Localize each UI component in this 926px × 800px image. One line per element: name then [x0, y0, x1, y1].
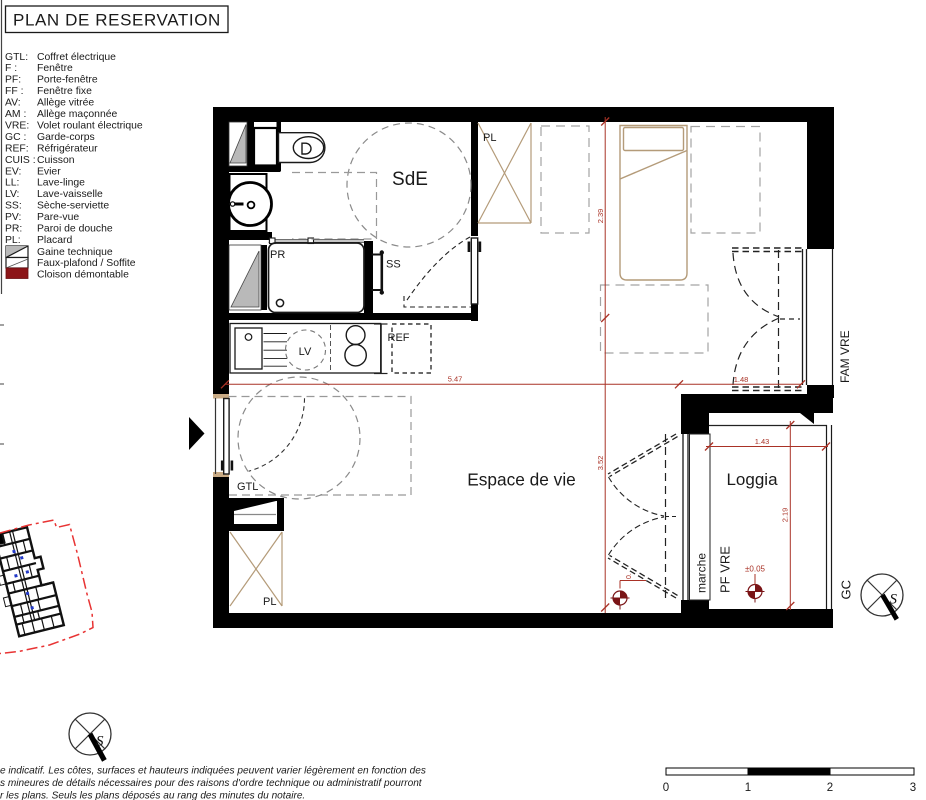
svg-text:Cuisson: Cuisson [37, 155, 75, 166]
svg-text:Lave-linge: Lave-linge [37, 178, 85, 189]
svg-text:F :: F : [5, 63, 17, 74]
svg-text:GC :: GC : [5, 132, 26, 143]
svg-text:1.43: 1.43 [755, 437, 770, 446]
svg-text:Evier: Evier [37, 166, 61, 177]
svg-text:Fenêtre: Fenêtre [37, 63, 73, 74]
svg-text:e indicatif. Les côtes, surfac: e indicatif. Les côtes, surfaces et haut… [0, 766, 426, 777]
svg-text:Garde-corps: Garde-corps [37, 132, 95, 143]
svg-text:1.48: 1.48 [734, 375, 749, 384]
svg-text:0.: 0. [626, 573, 633, 579]
svg-text:1: 1 [745, 782, 751, 794]
svg-text:REF:: REF: [5, 143, 29, 154]
svg-text:LL:: LL: [5, 178, 19, 189]
svg-text:PL:: PL: [5, 235, 21, 246]
svg-text:PR:: PR: [5, 224, 22, 235]
svg-text:Loggia: Loggia [726, 470, 778, 489]
svg-text:GTL:: GTL: [5, 52, 28, 63]
svg-text:3.52: 3.52 [596, 456, 605, 471]
svg-text:EV:: EV: [5, 166, 21, 177]
svg-text:s mineures de détails nécessai: s mineures de détails nécessaires pour d… [0, 778, 423, 789]
svg-text:Paroi de douche: Paroi de douche [37, 224, 113, 235]
svg-text:PF VRE: PF VRE [718, 546, 733, 593]
svg-text:SdE: SdE [392, 169, 428, 190]
svg-text:LV: LV [299, 346, 312, 358]
svg-text:Placard: Placard [37, 235, 72, 246]
svg-text:Fenêtre fixe: Fenêtre fixe [37, 86, 92, 97]
svg-text:GC: GC [839, 580, 854, 600]
svg-text:marche: marche [695, 553, 709, 593]
svg-text:PL: PL [263, 596, 276, 608]
svg-text:Coffret électrique: Coffret électrique [37, 52, 116, 63]
svg-text:VRE:: VRE: [5, 121, 29, 132]
svg-text:Allège vitrée: Allège vitrée [37, 98, 94, 109]
svg-text:Volet roulant électrique: Volet roulant électrique [37, 121, 143, 132]
svg-text:S: S [890, 592, 898, 608]
svg-text:Gaine technique: Gaine technique [37, 247, 113, 258]
svg-text:r les plans. Seuls les plans d: r les plans. Seuls les plans déposés au … [0, 791, 305, 800]
svg-text:S: S [96, 734, 104, 750]
svg-text:AV:: AV: [5, 98, 21, 109]
svg-text:PL: PL [483, 132, 496, 144]
svg-text:AM :: AM : [5, 109, 26, 120]
svg-text:Lave-vaisselle: Lave-vaisselle [37, 189, 103, 200]
svg-text:CUIS :: CUIS : [5, 155, 36, 166]
svg-text:Espace de vie: Espace de vie [467, 470, 576, 490]
svg-text:2: 2 [827, 782, 833, 794]
svg-text:Porte-fenêtre: Porte-fenêtre [37, 75, 98, 86]
svg-text:3: 3 [910, 782, 916, 794]
svg-text:5.47: 5.47 [448, 375, 463, 384]
svg-text:SS: SS [386, 259, 401, 271]
svg-text:0: 0 [663, 782, 669, 794]
svg-text:SS:: SS: [5, 201, 22, 212]
svg-text:FF :: FF : [5, 86, 23, 97]
svg-text:REF: REF [388, 332, 410, 344]
svg-text:Allège maçonnée: Allège maçonnée [37, 109, 118, 120]
svg-text:LV:: LV: [5, 189, 19, 200]
svg-text:±0.05: ±0.05 [745, 565, 766, 574]
svg-text:Cloison démontable: Cloison démontable [37, 269, 129, 280]
svg-text:GTL: GTL [237, 481, 258, 493]
svg-text:FAM VRE: FAM VRE [838, 330, 852, 383]
svg-text:Réfrigérateur: Réfrigérateur [37, 143, 98, 154]
svg-text:Faux-plafond / Soffite: Faux-plafond / Soffite [37, 258, 136, 269]
svg-text:PR: PR [270, 249, 285, 261]
svg-text:2.39: 2.39 [596, 209, 605, 224]
svg-text:Sèche-serviette: Sèche-serviette [37, 201, 109, 212]
svg-text:2.19: 2.19 [781, 508, 790, 523]
svg-text:Pare-vue: Pare-vue [37, 212, 79, 223]
svg-text:PF:: PF: [5, 75, 21, 86]
svg-text:PV:: PV: [5, 212, 21, 223]
svg-text:PLAN DE RESERVATION: PLAN DE RESERVATION [13, 11, 221, 30]
